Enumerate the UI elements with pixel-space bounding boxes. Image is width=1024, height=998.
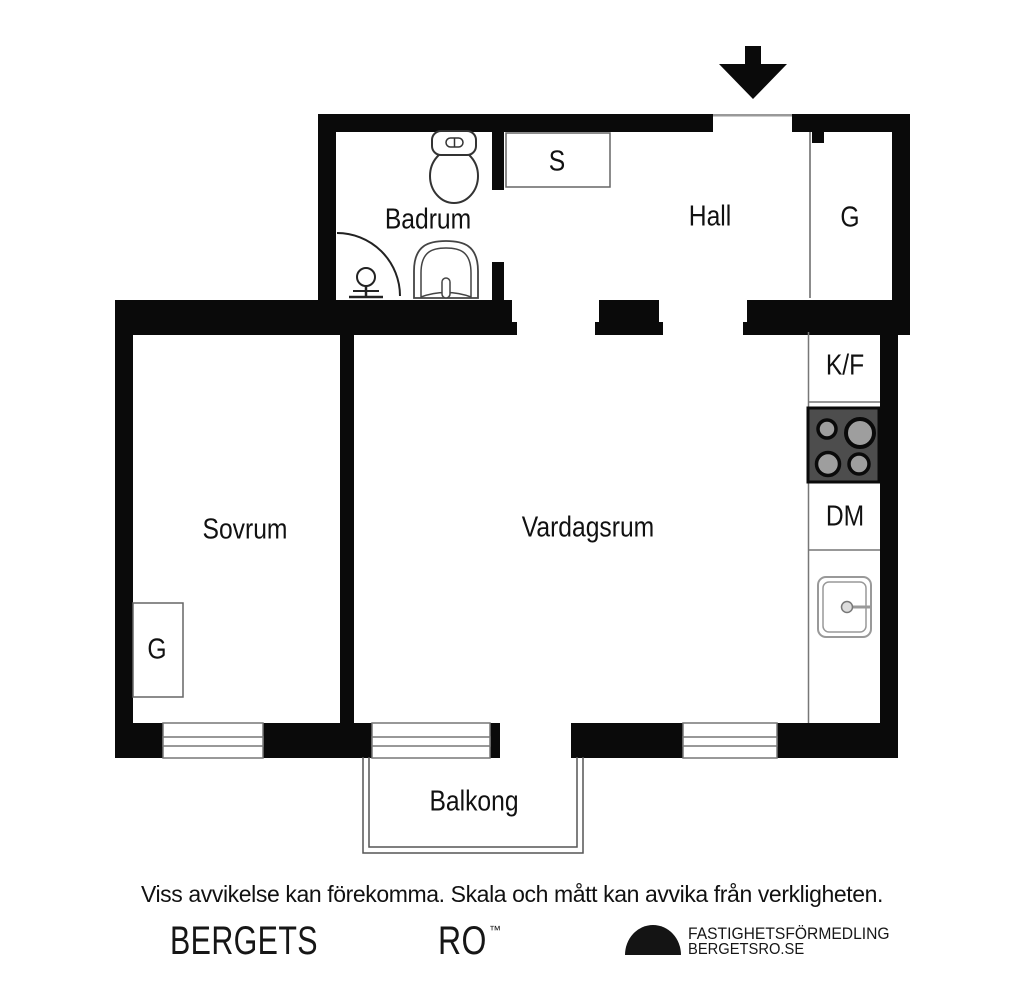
window-living-left: [372, 723, 490, 758]
wall-left: [115, 300, 133, 758]
disclaimer-text: Viss avvikelse kan förekomma. Skala och …: [0, 881, 1024, 908]
wall-bottom-1: [115, 723, 163, 758]
bathroom-sink-icon: [414, 241, 478, 298]
wall-mid-stub: [599, 300, 659, 322]
room-label-badrum: Badrum: [385, 206, 471, 235]
label-dishwasher: DM: [826, 503, 864, 532]
floorplan-page: Badrum S Hall G K/F DM Sovrum Vardagsrum…: [0, 0, 1024, 998]
closet-label-g-hall: G: [840, 204, 859, 233]
wall-wardrobe-stub: [812, 132, 824, 143]
closet-label-g-sovrum: G: [147, 636, 166, 665]
label-fridge-freezer: K/F: [826, 352, 864, 381]
wall-mid-band-right-base: [743, 322, 910, 335]
window-bedroom: [163, 723, 263, 758]
toilet-icon: [430, 131, 478, 203]
walls: [115, 114, 910, 758]
room-label-balkong: Balkong: [429, 788, 518, 817]
brand-bergets: BERGETS: [170, 921, 318, 961]
window-living-right: [683, 723, 777, 758]
kitchen-sink-icon: [818, 577, 872, 637]
room-label-hall: Hall: [689, 203, 731, 232]
agency-text: FASTIGHETSFÖRMEDLING BERGETSRO.SE: [688, 926, 890, 957]
windows: [163, 723, 777, 758]
wall-bathroom-right-bottom: [492, 262, 504, 302]
brand-ro: RO: [438, 921, 487, 961]
wall-bathroom-left: [318, 114, 336, 302]
wall-mid-stub-base: [595, 322, 663, 335]
wall-bathroom-right-top: [492, 132, 504, 190]
stove-icon: [808, 408, 879, 482]
wall-mid-band-left: [115, 300, 512, 335]
trademark-symbol: ™: [489, 923, 501, 937]
wall-bottom-3: [571, 723, 683, 758]
wall-right-lower: [880, 332, 898, 758]
floorplan-drawing: [0, 0, 1024, 998]
entrance-arrow-icon: [719, 46, 787, 99]
wall-bottom-4: [777, 723, 898, 758]
wall-mid-band-right: [747, 300, 910, 322]
wall-bottom-2: [263, 723, 372, 758]
closet-label-s: S: [549, 148, 565, 177]
wall-mid-band-step: [507, 322, 517, 335]
entrance-threshold: [713, 114, 792, 117]
room-label-vardagsrum: Vardagsrum: [522, 514, 654, 543]
wall-bottom-stub: [490, 723, 500, 758]
shower-icon: [337, 233, 400, 297]
wall-divider-bedroom: [340, 335, 354, 723]
agency-line2: BERGETSRO.SE: [688, 942, 890, 958]
wall-top-left: [318, 114, 713, 132]
room-label-sovrum: Sovrum: [203, 516, 288, 545]
agency-line1: FASTIGHETSFÖRMEDLING: [688, 926, 890, 942]
